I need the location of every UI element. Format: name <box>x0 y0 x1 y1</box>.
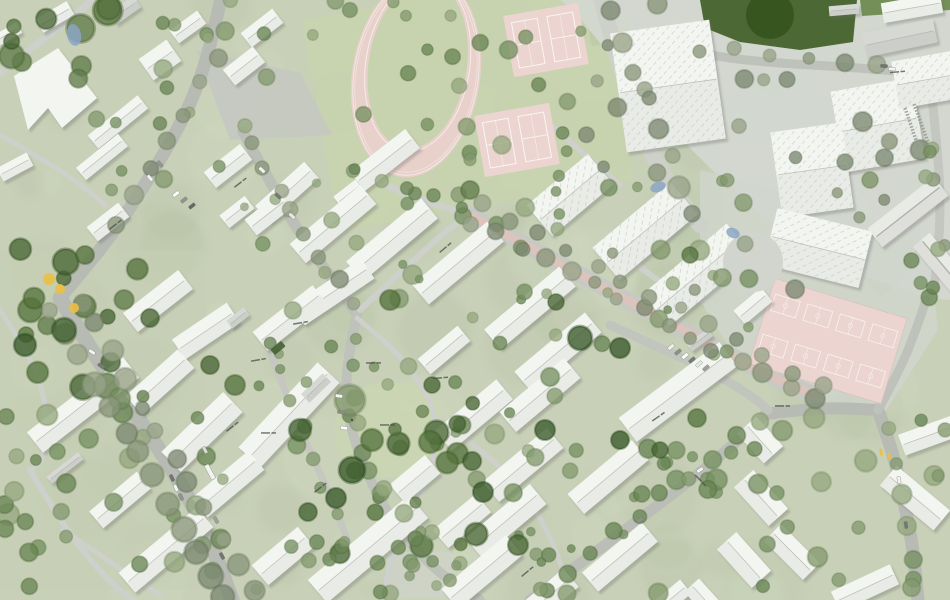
site-plan-viewport <box>0 0 950 600</box>
tone-overlay <box>0 0 950 600</box>
site-plan-map <box>0 0 950 600</box>
tone-wash <box>0 0 950 600</box>
